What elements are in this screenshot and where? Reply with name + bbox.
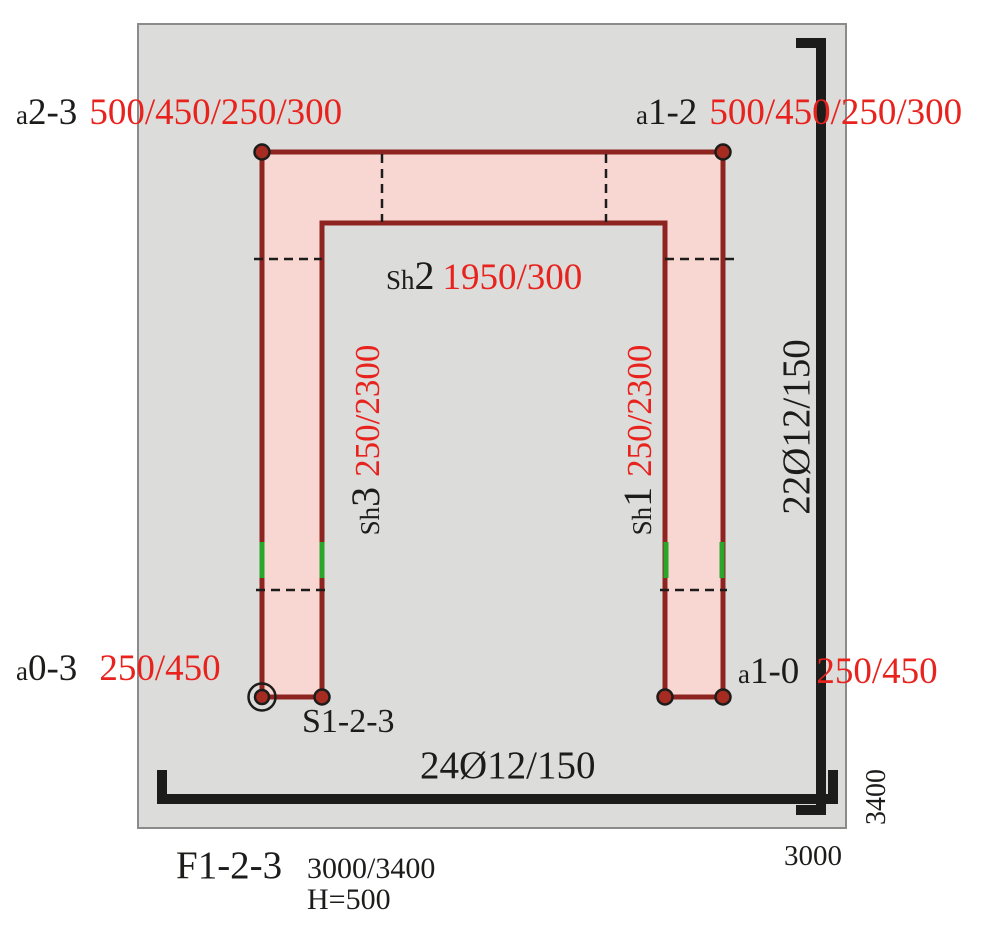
shear-wall-label-sh1: Sh1250/2300	[616, 325, 660, 555]
shear-wall-label-sh2: Sh21950/300	[386, 256, 582, 296]
anchor-dims: 500/450/250/300	[89, 92, 342, 133]
shear-dims: 250/2300	[620, 345, 659, 477]
anchor-dims: 250/450	[99, 648, 220, 689]
shear-dims: 1950/300	[443, 257, 583, 298]
anchor-label-top-left: a2-3500/450/250/300	[16, 94, 342, 131]
node-dot	[255, 145, 270, 160]
anchor-prefix: a	[636, 100, 648, 130]
anchor-label-bottom-right: a1-0250/450	[738, 653, 938, 690]
footing-plan-dims: 3000/3400	[307, 854, 435, 884]
node-dot	[716, 145, 731, 160]
shear-dims: 250/2300	[348, 345, 387, 477]
dimension-width: 3000	[784, 842, 842, 871]
node-dot	[255, 690, 269, 704]
anchor-dims: 500/450/250/300	[709, 92, 962, 133]
anchor-prefix: a	[16, 656, 28, 686]
anchor-label-top-right: a1-2500/450/250/300	[636, 94, 962, 131]
wall-group-label: S1-2-3	[302, 705, 395, 739]
anchor-id: 2-3	[28, 92, 77, 133]
footing-height: H=500	[307, 885, 391, 915]
foundation-plan-drawing: a2-3500/450/250/300 a1-2500/450/250/300 …	[0, 0, 993, 944]
shear-id: 3	[343, 487, 388, 507]
shear-prefix: Sh	[355, 507, 385, 536]
shear-id: 2	[415, 253, 435, 298]
node-dot	[658, 690, 673, 705]
foundation-slab	[138, 24, 846, 828]
rebar-label-bottom: 24Ø12/150	[420, 746, 596, 785]
footing-name: F1-2-3	[176, 846, 282, 885]
anchor-id: 1-0	[750, 651, 799, 692]
anchor-prefix: a	[738, 659, 750, 689]
anchor-id: 0-3	[28, 648, 77, 689]
node-dot	[716, 690, 731, 705]
shear-prefix: Sh	[627, 507, 657, 536]
anchor-label-bottom-left: a0-3250/450	[16, 650, 221, 687]
dimension-height: 3400	[862, 761, 892, 833]
rebar-label-right: 22Ø12/150	[775, 322, 819, 532]
anchor-prefix: a	[16, 100, 28, 130]
anchor-dims: 250/450	[816, 651, 937, 692]
anchor-id: 1-2	[648, 92, 697, 133]
shear-id: 1	[615, 487, 660, 507]
plan-geometry	[0, 0, 993, 944]
shear-prefix: Sh	[386, 265, 415, 295]
shear-wall-label-sh3: Sh3250/2300	[344, 325, 388, 555]
